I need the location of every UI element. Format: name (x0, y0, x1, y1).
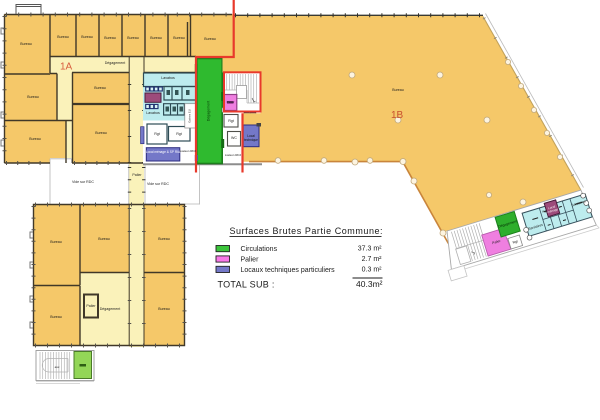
svg-text:Dégagement: Dégagement (105, 61, 126, 65)
svg-text:Bureau: Bureau (127, 36, 139, 40)
svg-text:Palier: Palier (132, 173, 142, 177)
svg-text:Rgt: Rgt (154, 132, 160, 136)
svg-text:Bureau: Bureau (104, 36, 116, 40)
svg-text:Dégagement: Dégagement (100, 307, 121, 311)
svg-text:Palier: Palier (227, 100, 235, 104)
svg-text:Local ménage & SP RIA: Local ménage & SP RIA (146, 150, 181, 154)
svg-text:1B: 1B (391, 110, 404, 121)
svg-text:Bureau: Bureau (150, 36, 162, 40)
svg-text:Liaison RDJ: Liaison RDJ (180, 149, 197, 153)
svg-text:Bureau: Bureau (50, 240, 62, 244)
svg-text:WC: WC (231, 136, 237, 140)
svg-text:Locaux techniques particuliers: Locaux techniques particuliers (241, 267, 336, 274)
svg-text:Rgt: Rgt (176, 132, 182, 136)
svg-text:Lavabos: Lavabos (161, 76, 175, 80)
svg-text:Bureau: Bureau (158, 237, 170, 241)
svg-text:Bureau: Bureau (95, 131, 107, 135)
svg-text:asc: asc (55, 365, 60, 369)
svg-text:Palier: Palier (86, 304, 96, 308)
svg-text:Surfaces Brutes Partie Commune: Surfaces Brutes Partie Commune: (230, 226, 384, 236)
svg-text:Bureau: Bureau (20, 42, 32, 46)
svg-text:Bureau: Bureau (27, 95, 39, 99)
svg-text:Bureau: Bureau (29, 137, 41, 141)
svg-text:Gaines EU: Gaines EU (188, 109, 192, 123)
svg-text:Dégagement: Dégagement (207, 101, 211, 122)
svg-text:Palier: Palier (241, 256, 260, 263)
svg-text:Bureau: Bureau (57, 35, 69, 39)
svg-text:Bureau: Bureau (204, 37, 216, 41)
svg-text:TOTAL SUB :: TOTAL SUB : (218, 280, 275, 290)
svg-text:Bureau: Bureau (173, 36, 185, 40)
svg-text:Bureau: Bureau (98, 237, 110, 241)
svg-text:2.7 m²: 2.7 m² (362, 256, 383, 263)
svg-text:Vide sur RDC: Vide sur RDC (147, 182, 169, 186)
svg-text:Bureau: Bureau (392, 88, 404, 92)
svg-text:1A: 1A (60, 62, 73, 73)
svg-text:Bureau: Bureau (81, 35, 93, 39)
svg-text:technique: technique (244, 138, 258, 142)
svg-text:Rgt: Rgt (228, 119, 234, 123)
svg-text:Vide sur RDC: Vide sur RDC (72, 180, 94, 184)
svg-text:37.3 m²: 37.3 m² (358, 246, 382, 253)
svg-text:Bureau: Bureau (94, 86, 106, 90)
svg-text:40.3m²: 40.3m² (356, 279, 383, 289)
svg-text:Lavabos: Lavabos (146, 111, 160, 115)
svg-text:Liaison RDJ: Liaison RDJ (225, 153, 242, 157)
svg-text:0.3 m²: 0.3 m² (362, 266, 383, 273)
svg-text:Bureau: Bureau (50, 315, 62, 319)
svg-text:Bureau: Bureau (158, 307, 170, 311)
svg-text:Circulations: Circulations (241, 246, 278, 253)
